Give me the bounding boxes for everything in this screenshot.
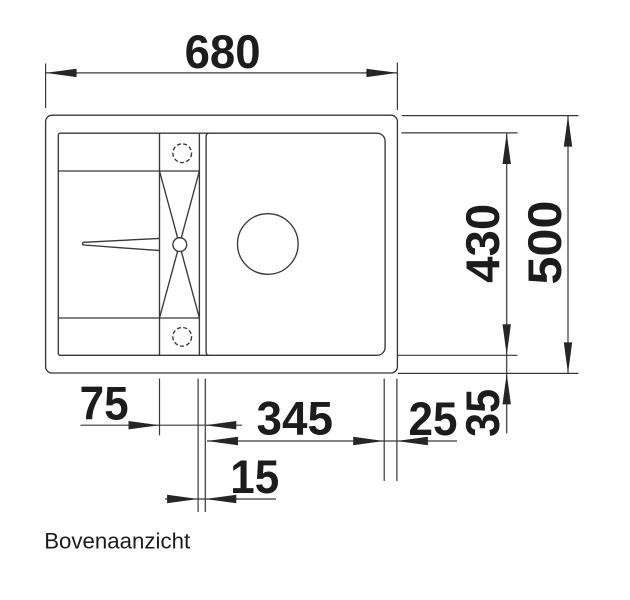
- svg-text:25: 25: [409, 392, 458, 445]
- svg-text:Bovenaanzicht: Bovenaanzicht: [44, 529, 191, 554]
- svg-text:345: 345: [257, 392, 334, 445]
- svg-text:35: 35: [456, 389, 509, 437]
- svg-text:15: 15: [230, 450, 279, 503]
- svg-text:75: 75: [80, 376, 129, 429]
- svg-text:500: 500: [518, 201, 571, 285]
- svg-text:430: 430: [456, 204, 509, 283]
- svg-text:680: 680: [185, 25, 261, 78]
